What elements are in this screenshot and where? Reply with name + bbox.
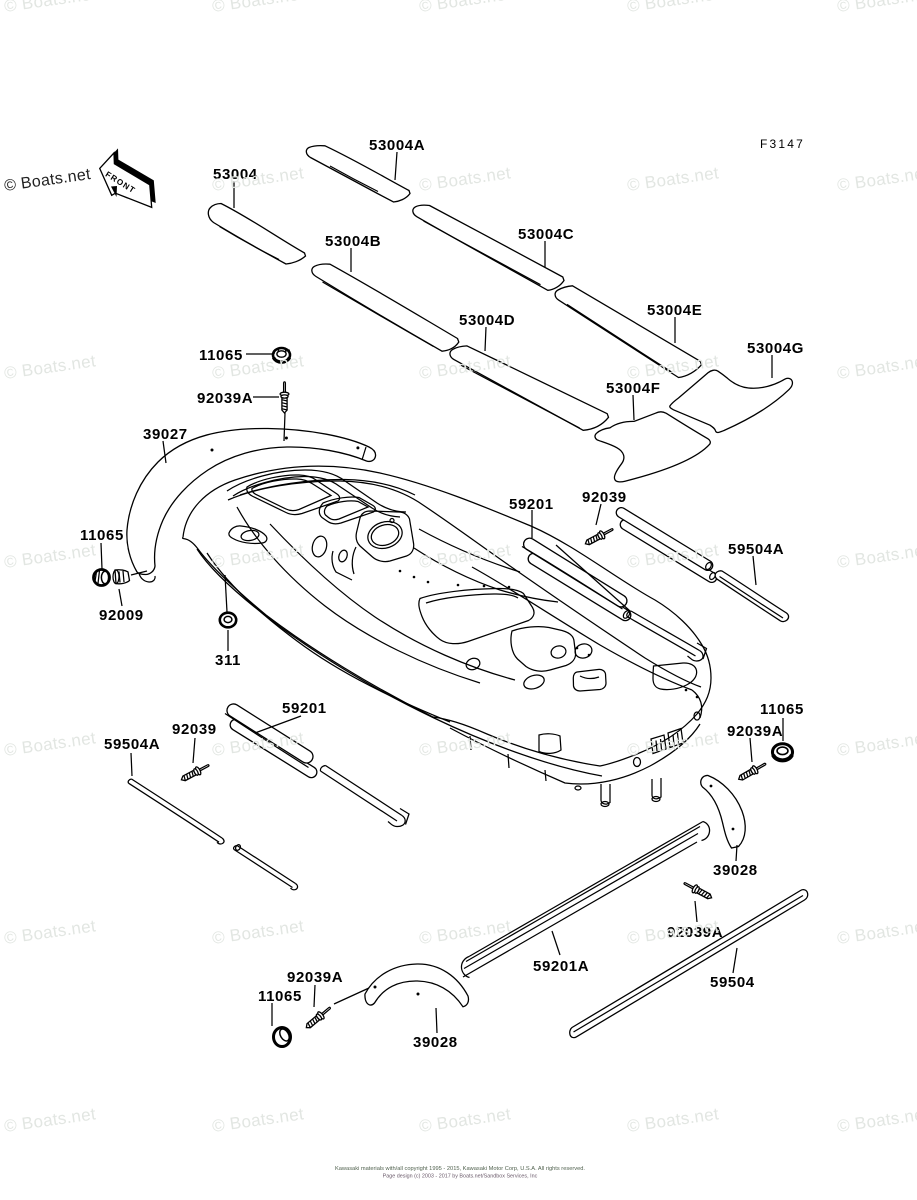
svg-text:© Boats.net: © Boats.net — [3, 540, 97, 572]
svg-text:92039A: 92039A — [287, 969, 343, 986]
svg-text:92039A: 92039A — [727, 723, 783, 740]
svg-text:53004D: 53004D — [459, 312, 515, 329]
svg-text:39027: 39027 — [143, 426, 188, 443]
svg-text:© Boats.net: © Boats.net — [3, 166, 92, 195]
svg-text:39028: 39028 — [713, 862, 758, 879]
svg-text:© Boats.net: © Boats.net — [626, 163, 720, 195]
svg-text:11065: 11065 — [258, 988, 302, 1005]
svg-text:53004C: 53004C — [518, 226, 574, 243]
svg-text:© Boats.net: © Boats.net — [418, 163, 512, 195]
svg-text:F3147: F3147 — [760, 137, 805, 151]
svg-text:53004B: 53004B — [325, 233, 381, 250]
svg-text:© Boats.net: © Boats.net — [3, 728, 97, 760]
svg-text:53004G: 53004G — [747, 340, 804, 357]
svg-text:© Boats.net: © Boats.net — [418, 728, 512, 760]
svg-text:© Boats.net: © Boats.net — [3, 916, 97, 948]
svg-text:59504: 59504 — [710, 974, 755, 991]
svg-text:© Boats.net: © Boats.net — [418, 1104, 512, 1136]
svg-text:© Boats.net: © Boats.net — [836, 728, 917, 760]
svg-text:© Boats.net: © Boats.net — [418, 540, 512, 572]
svg-text:© Boats.net: © Boats.net — [626, 1104, 720, 1136]
svg-text:© Boats.net: © Boats.net — [211, 916, 305, 948]
svg-text:53004F: 53004F — [606, 380, 660, 397]
svg-text:311: 311 — [215, 652, 241, 669]
svg-text:Kawasaki materials with/all co: Kawasaki materials with/all copyright 19… — [335, 1166, 585, 1172]
svg-text:© Boats.net: © Boats.net — [626, 728, 720, 760]
svg-text:© Boats.net: © Boats.net — [836, 540, 917, 572]
svg-text:© Boats.net: © Boats.net — [3, 0, 97, 16]
svg-text:Page design (c) 2003 - 2017 by: Page design (c) 2003 - 2017 by Boats.net… — [383, 1174, 538, 1180]
svg-text:© Boats.net: © Boats.net — [418, 0, 512, 16]
svg-text:92039: 92039 — [582, 489, 627, 506]
svg-text:53004A: 53004A — [369, 137, 425, 154]
svg-text:© Boats.net: © Boats.net — [626, 0, 720, 16]
svg-text:© Boats.net: © Boats.net — [211, 0, 305, 16]
svg-text:59201: 59201 — [282, 700, 327, 717]
svg-text:11065: 11065 — [760, 701, 804, 718]
svg-text:59201A: 59201A — [533, 958, 589, 975]
svg-text:© Boats.net: © Boats.net — [3, 351, 97, 383]
svg-text:92039: 92039 — [172, 721, 217, 738]
svg-text:53004E: 53004E — [647, 302, 702, 319]
svg-text:© Boats.net: © Boats.net — [211, 1104, 305, 1136]
svg-text:92009: 92009 — [99, 607, 144, 624]
svg-text:© Boats.net: © Boats.net — [836, 163, 917, 195]
svg-text:© Boats.net: © Boats.net — [211, 540, 305, 572]
svg-text:© Boats.net: © Boats.net — [836, 916, 917, 948]
svg-text:© Boats.net: © Boats.net — [626, 916, 720, 948]
svg-text:© Boats.net: © Boats.net — [836, 0, 917, 16]
svg-text:© Boats.net: © Boats.net — [3, 1104, 97, 1136]
svg-text:39028: 39028 — [413, 1034, 458, 1051]
svg-text:59504A: 59504A — [728, 541, 784, 558]
svg-text:© Boats.net: © Boats.net — [836, 1104, 917, 1136]
svg-text:92039A: 92039A — [197, 390, 253, 407]
svg-text:59504A: 59504A — [104, 736, 160, 753]
svg-text:59201: 59201 — [509, 496, 554, 513]
svg-text:© Boats.net: © Boats.net — [836, 351, 917, 383]
